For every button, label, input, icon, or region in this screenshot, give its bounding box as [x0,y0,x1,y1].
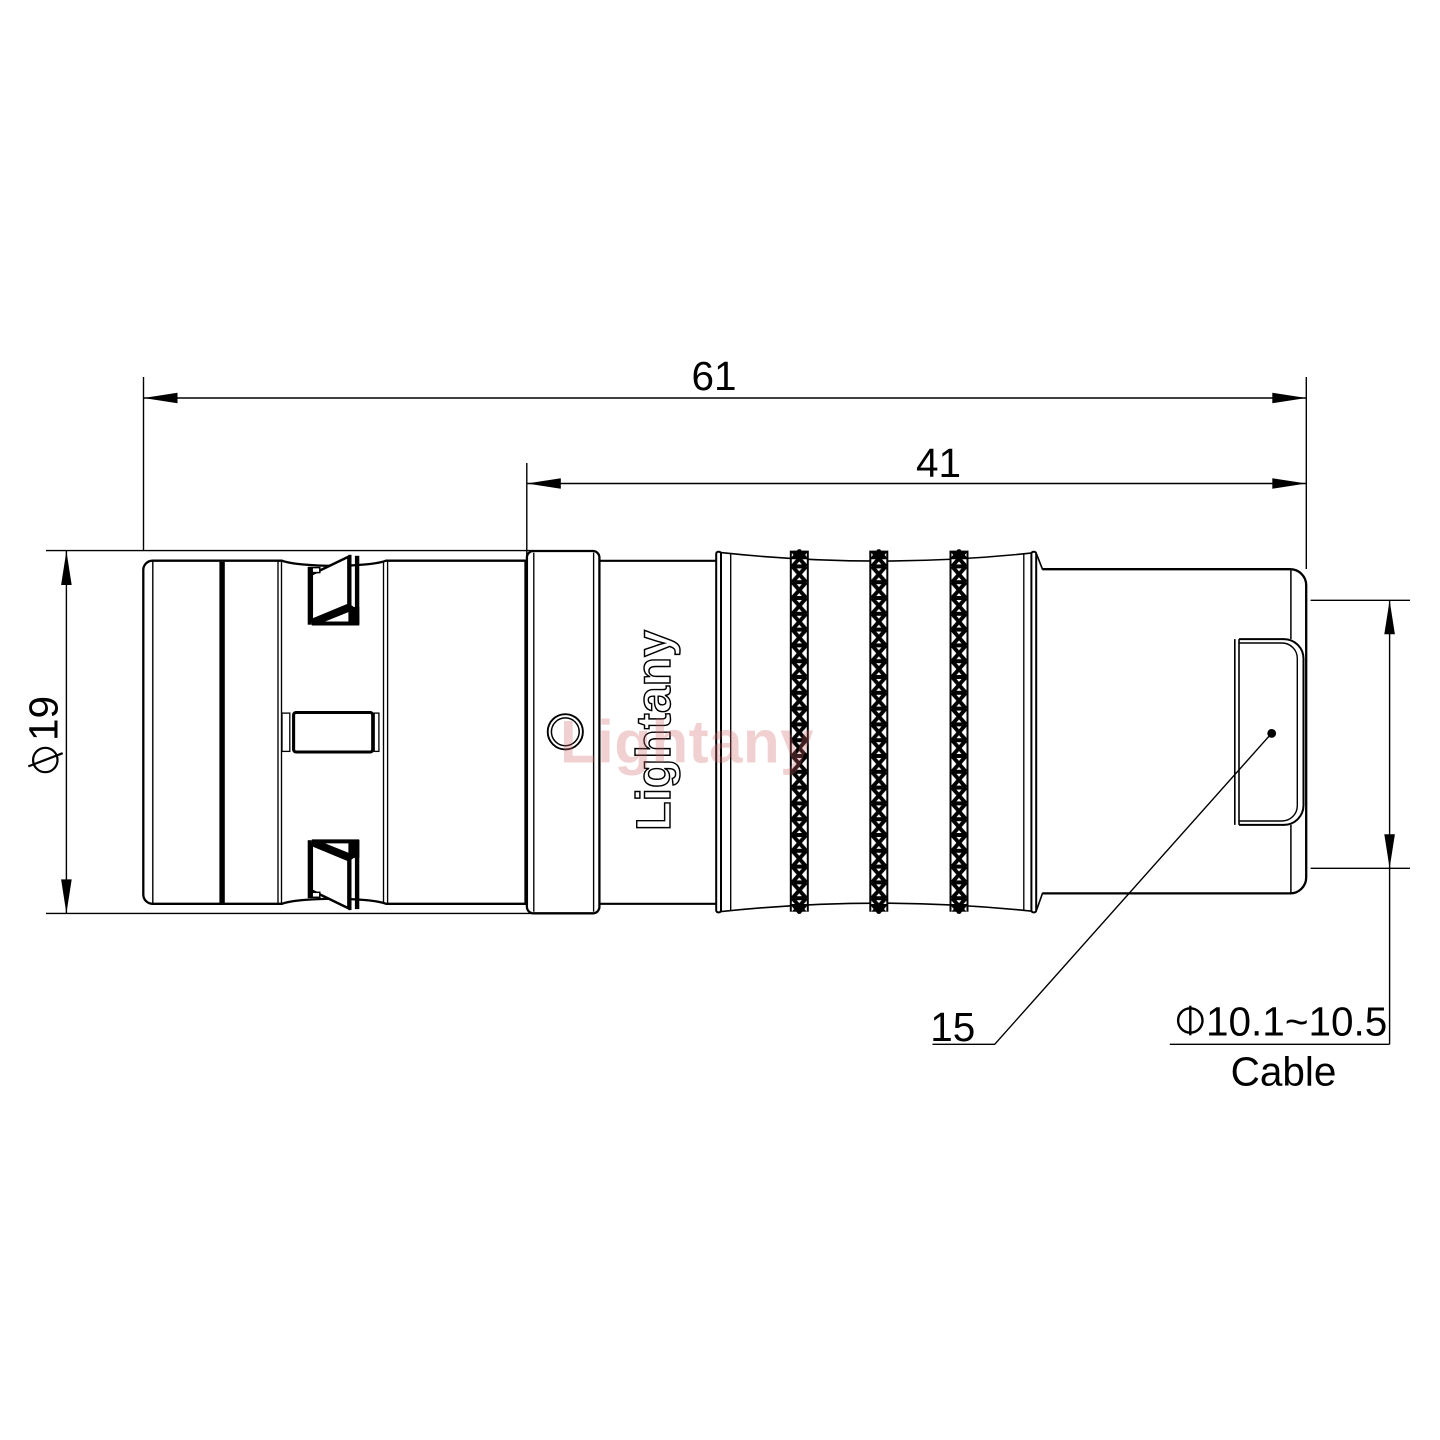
svg-text:15: 15 [930,1004,975,1050]
svg-text:61: 61 [691,353,736,399]
svg-text:Cable: Cable [1231,1049,1337,1095]
svg-text:Lightany: Lightany [560,709,814,776]
svg-text:41: 41 [916,440,961,486]
svg-text:10.1~10.5: 10.1~10.5 [1206,998,1387,1044]
svg-text:19: 19 [21,696,67,741]
